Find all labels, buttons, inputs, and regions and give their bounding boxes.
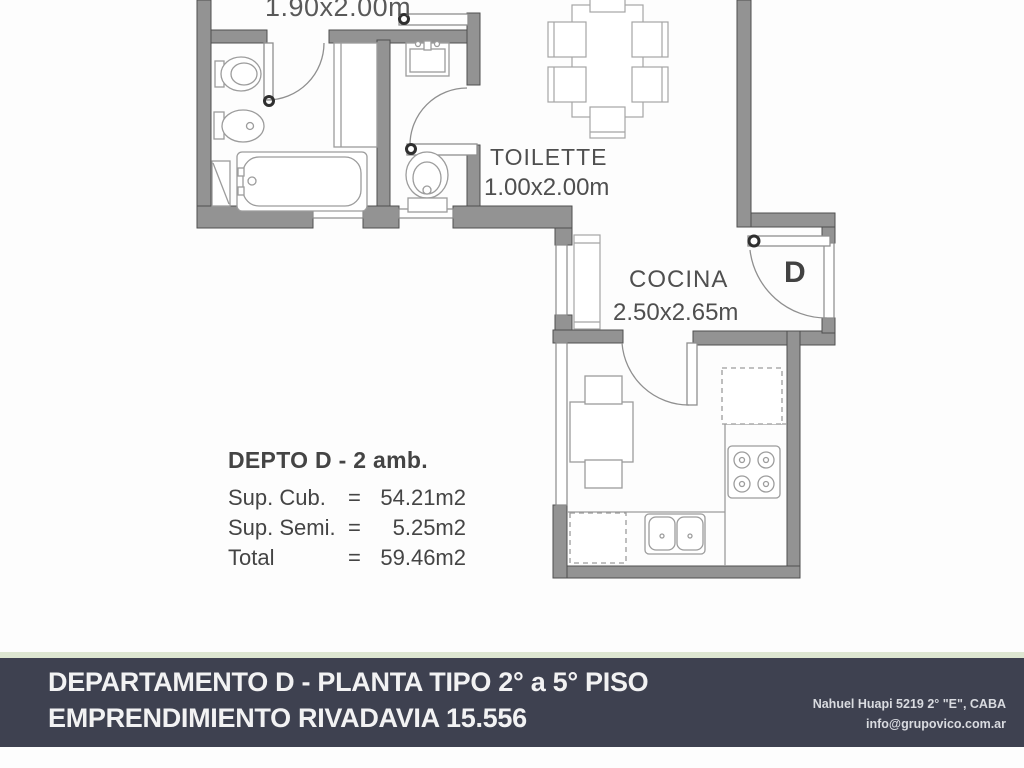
- footer-banner: DEPARTAMENTO D - PLANTA TIPO 2° a 5° PIS…: [0, 652, 1024, 747]
- door-arc: [267, 43, 324, 100]
- equals-sign: =: [348, 513, 374, 543]
- dining-chair: [632, 22, 668, 57]
- wall: [693, 331, 835, 345]
- summary-value: 5.25m2: [374, 513, 466, 543]
- banner-titles: DEPARTAMENTO D - PLANTA TIPO 2° a 5° PIS…: [48, 664, 648, 736]
- top-room-dimension-label: 1.90x2.00m: [265, 0, 411, 23]
- wall: [553, 505, 567, 578]
- window: [824, 243, 834, 318]
- wall: [787, 331, 800, 578]
- washer-fixture: [570, 513, 626, 563]
- wall: [751, 213, 835, 227]
- kitchen-chair: [585, 376, 622, 404]
- banner-contact: Nahuel Huapi 5219 2° "E", CABA info@grup…: [813, 694, 1006, 734]
- toilette-dimension-label: 1.00x2.00m: [484, 174, 609, 202]
- passage-closet: [574, 235, 600, 329]
- contact-address: Nahuel Huapi 5219 2° "E", CABA: [813, 694, 1006, 714]
- wall: [737, 0, 751, 227]
- wall: [197, 0, 211, 228]
- entrance-letter-label: D: [784, 256, 806, 290]
- door-leaf: [264, 43, 273, 100]
- wall: [363, 206, 399, 228]
- kitchen-fixtures: [567, 368, 787, 566]
- banner-title-line1: DEPARTAMENTO D - PLANTA TIPO 2° a 5° PIS…: [48, 664, 648, 700]
- floor-plan-page: 1.90x2.00m TOILETTE 1.00x2.00m COCINA 2.…: [0, 0, 1024, 768]
- bathroom-fixtures: [212, 43, 377, 211]
- bathroom-closet: [334, 43, 377, 147]
- dining-chair: [590, 0, 625, 12]
- kitchen-sink-fixture: [645, 514, 705, 554]
- area-summary: DEPTO D - 2 amb. Sup. Cub. = 54.21m2 Sup…: [228, 447, 466, 573]
- summary-row: Sup. Cub. = 54.21m2: [228, 483, 466, 513]
- summary-label: Sup. Cub.: [228, 483, 348, 513]
- dining-chair: [548, 67, 586, 102]
- summary-label: Sup. Semi.: [228, 513, 348, 543]
- fridge-fixture: [722, 368, 782, 424]
- door-leaf: [407, 144, 477, 155]
- summary-label: Total: [228, 543, 348, 573]
- dining-chair: [632, 67, 668, 102]
- window: [556, 245, 567, 315]
- door-arc: [622, 343, 689, 405]
- wall: [377, 40, 390, 208]
- summary-title: DEPTO D - 2 amb.: [228, 447, 466, 474]
- cocina-room-label: COCINA: [629, 266, 728, 294]
- wall: [553, 330, 623, 343]
- toilet-fixture: [215, 57, 261, 91]
- bidet-fixture: [214, 110, 264, 142]
- wall: [467, 13, 480, 85]
- door-leaf: [687, 343, 697, 405]
- toilet-fixture: [406, 152, 448, 212]
- banner-body: DEPARTAMENTO D - PLANTA TIPO 2° a 5° PIS…: [0, 658, 1024, 747]
- stove-fixture: [728, 446, 780, 498]
- dining-chair: [590, 107, 625, 138]
- wall: [211, 30, 267, 43]
- equals-sign: =: [348, 483, 374, 513]
- cocina-dimension-label: 2.50x2.65m: [613, 299, 738, 327]
- summary-row: Sup. Semi. = 5.25m2: [228, 513, 466, 543]
- shaft-closet: [212, 161, 230, 206]
- summary-value: 54.21m2: [374, 483, 466, 513]
- sink-fixture: [406, 41, 449, 76]
- dining-set: [548, 0, 668, 138]
- door-arc: [410, 88, 467, 145]
- contact-email: info@grupovico.com.ar: [813, 714, 1006, 734]
- wall: [453, 206, 572, 228]
- summary-row: Total = 59.46m2: [228, 543, 466, 573]
- floor-plan-drawing: [0, 0, 1024, 652]
- summary-value: 59.46m2: [374, 543, 466, 573]
- hinge-icon: [265, 97, 274, 106]
- dining-chair: [548, 22, 586, 57]
- wall: [822, 318, 835, 333]
- kitchen-table: [570, 402, 633, 462]
- kitchen-chair: [585, 460, 622, 488]
- kitchen-table-set: [570, 376, 633, 488]
- wall: [329, 30, 468, 43]
- equals-sign: =: [348, 543, 374, 573]
- window: [556, 343, 567, 505]
- toilette-room-label: TOILETTE: [490, 144, 608, 171]
- wall: [555, 228, 572, 245]
- bathtub-fixture: [237, 152, 367, 211]
- wall: [553, 566, 800, 578]
- banner-title-line2: EMPRENDIMIENTO RIVADAVIA 15.556: [48, 700, 648, 736]
